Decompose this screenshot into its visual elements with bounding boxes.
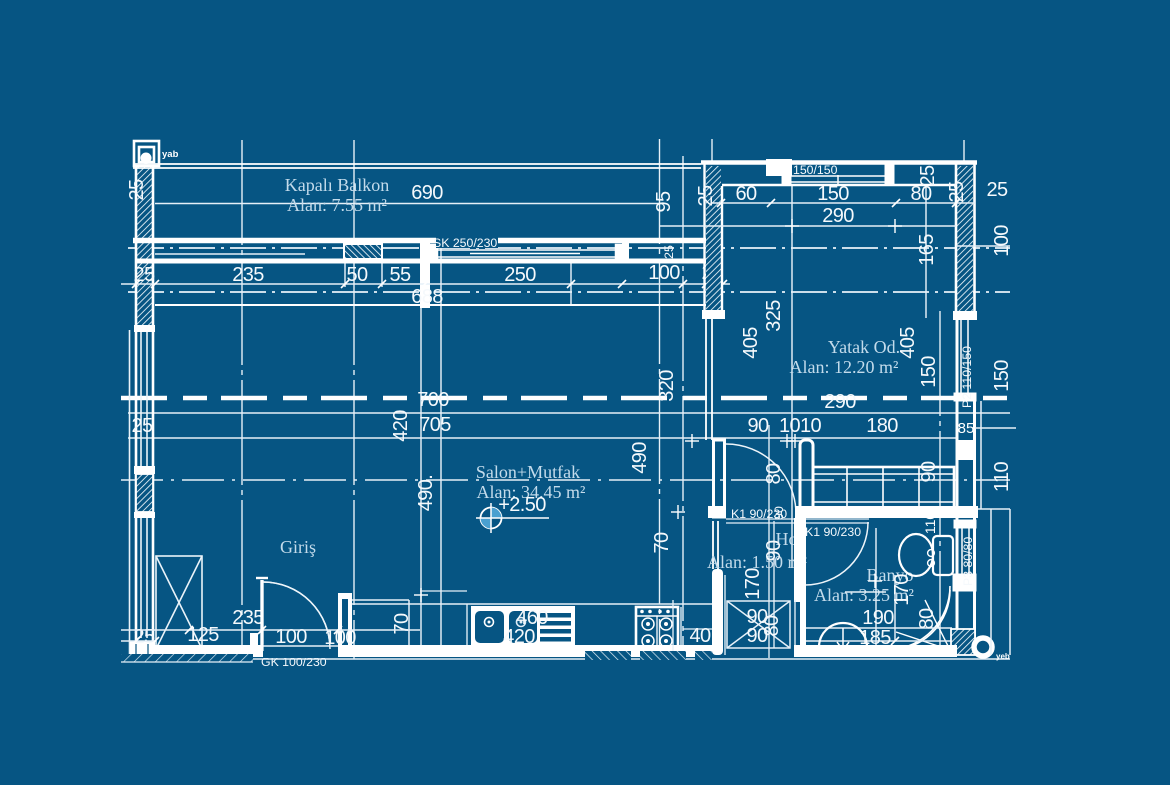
svg-text:+2.50: +2.50	[498, 494, 546, 516]
svg-text:110: 110	[991, 461, 1013, 492]
svg-text:PB: PB	[769, 162, 786, 176]
svg-text:1010: 1010	[779, 415, 822, 437]
svg-text:25: 25	[662, 245, 676, 259]
svg-text:190: 190	[862, 607, 894, 629]
svg-text:Salon+Mutfak: Salon+Mutfak	[476, 462, 580, 482]
svg-text:SK 250/230: SK 250/230	[433, 236, 497, 250]
svg-text:690: 690	[411, 182, 443, 204]
svg-text:yab: yab	[162, 149, 179, 160]
svg-text:Alan: 7.55 m²: Alan: 7.55 m²	[287, 195, 387, 215]
svg-text:Kapalı Balkon: Kapalı Balkon	[285, 175, 389, 195]
svg-text:25: 25	[917, 165, 939, 187]
svg-text:60: 60	[735, 183, 757, 205]
svg-text:80: 80	[761, 615, 783, 637]
svg-text:700: 700	[417, 389, 449, 411]
svg-text:90: 90	[772, 506, 786, 520]
svg-text:40: 40	[689, 625, 711, 647]
svg-text:235: 235	[232, 264, 264, 286]
svg-text:100: 100	[991, 225, 1013, 257]
svg-text:K1 90/230: K1 90/230	[805, 525, 861, 539]
svg-text:150: 150	[817, 183, 849, 205]
svg-text:90: 90	[747, 415, 769, 437]
svg-text:25: 25	[126, 179, 148, 201]
svg-text:150: 150	[918, 356, 940, 388]
svg-text:490.: 490.	[415, 475, 437, 512]
svg-text:55: 55	[389, 264, 411, 286]
svg-text:25: 25	[131, 415, 153, 437]
svg-text:325: 325	[763, 300, 785, 332]
svg-text:70: 70	[651, 532, 673, 554]
svg-text:290: 290	[822, 205, 854, 227]
svg-text:405: 405	[897, 327, 919, 359]
svg-text:150: 150	[991, 360, 1013, 392]
svg-text:Alan: 12.20 m²: Alan: 12.20 m²	[790, 357, 899, 377]
svg-text:70: 70	[391, 613, 413, 635]
svg-text:235: 235	[232, 607, 264, 629]
svg-text:490: 490	[629, 442, 651, 474]
svg-text:290: 290	[824, 391, 856, 413]
svg-text:90: 90	[763, 540, 785, 562]
svg-text:165: 165	[916, 234, 938, 266]
svg-text:170: 170	[891, 574, 913, 606]
svg-text:80: 80	[763, 463, 785, 485]
svg-text:405: 405	[740, 327, 762, 359]
svg-text:95: 95	[653, 191, 675, 213]
svg-text:25: 25	[986, 179, 1008, 201]
svg-text:P2 110/150: P2 110/150	[960, 346, 974, 408]
svg-text:80: 80	[916, 608, 938, 630]
svg-text:110: 110	[922, 512, 938, 535]
svg-text:Yatak Od.: Yatak Od.	[828, 337, 900, 357]
svg-text:90: 90	[918, 461, 940, 483]
svg-text:100: 100	[648, 262, 680, 284]
svg-text:170: 170	[742, 568, 764, 600]
svg-text:150/150: 150/150	[793, 163, 838, 177]
svg-text:Giriş: Giriş	[280, 537, 316, 557]
svg-text:320: 320	[656, 370, 678, 402]
svg-text:P3 80/80: P3 80/80	[961, 537, 975, 586]
svg-text:705: 705	[419, 414, 451, 436]
svg-text:25: 25	[695, 185, 717, 207]
svg-text:25: 25	[946, 181, 968, 203]
svg-text:420: 420	[503, 626, 535, 648]
svg-text:yeb: yeb	[996, 652, 1010, 661]
svg-text:420: 420	[390, 410, 412, 442]
svg-text:180: 180	[866, 415, 898, 437]
svg-text:50: 50	[346, 264, 368, 286]
svg-text:250: 250	[504, 264, 536, 286]
svg-text:85: 85	[958, 420, 975, 437]
